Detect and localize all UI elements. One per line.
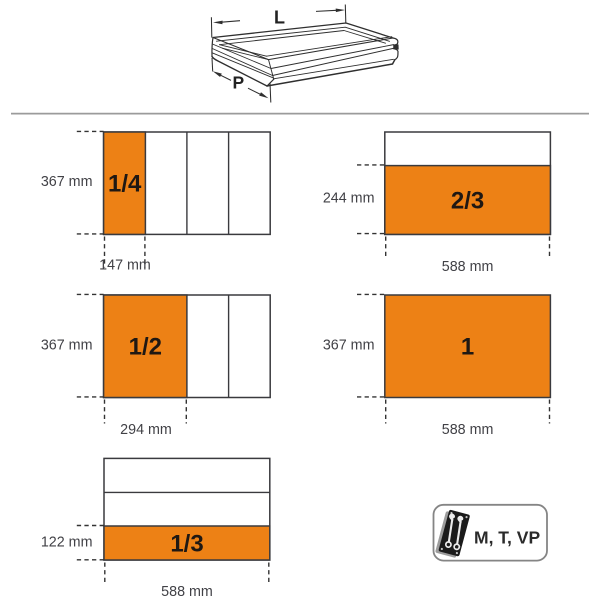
svg-text:1/2: 1/2 <box>129 334 162 361</box>
svg-text:P: P <box>232 73 244 93</box>
svg-text:2/3: 2/3 <box>451 188 484 215</box>
svg-text:244 mm: 244 mm <box>323 191 375 207</box>
svg-text:M, T, VP: M, T, VP <box>474 528 540 548</box>
svg-text:588 mm: 588 mm <box>442 422 494 438</box>
svg-text:1/4: 1/4 <box>108 171 142 198</box>
svg-text:122 mm: 122 mm <box>41 535 93 551</box>
svg-text:588 mm: 588 mm <box>442 259 494 275</box>
svg-text:588 mm: 588 mm <box>161 584 213 600</box>
svg-text:294 mm: 294 mm <box>120 422 172 438</box>
svg-text:L: L <box>274 8 285 28</box>
svg-text:367 mm: 367 mm <box>41 174 93 190</box>
svg-text:1: 1 <box>461 334 474 361</box>
svg-text:1/3: 1/3 <box>170 531 203 558</box>
svg-text:367 mm: 367 mm <box>41 338 93 354</box>
svg-text:147 mm: 147 mm <box>99 258 151 274</box>
svg-text:367 mm: 367 mm <box>323 338 375 354</box>
